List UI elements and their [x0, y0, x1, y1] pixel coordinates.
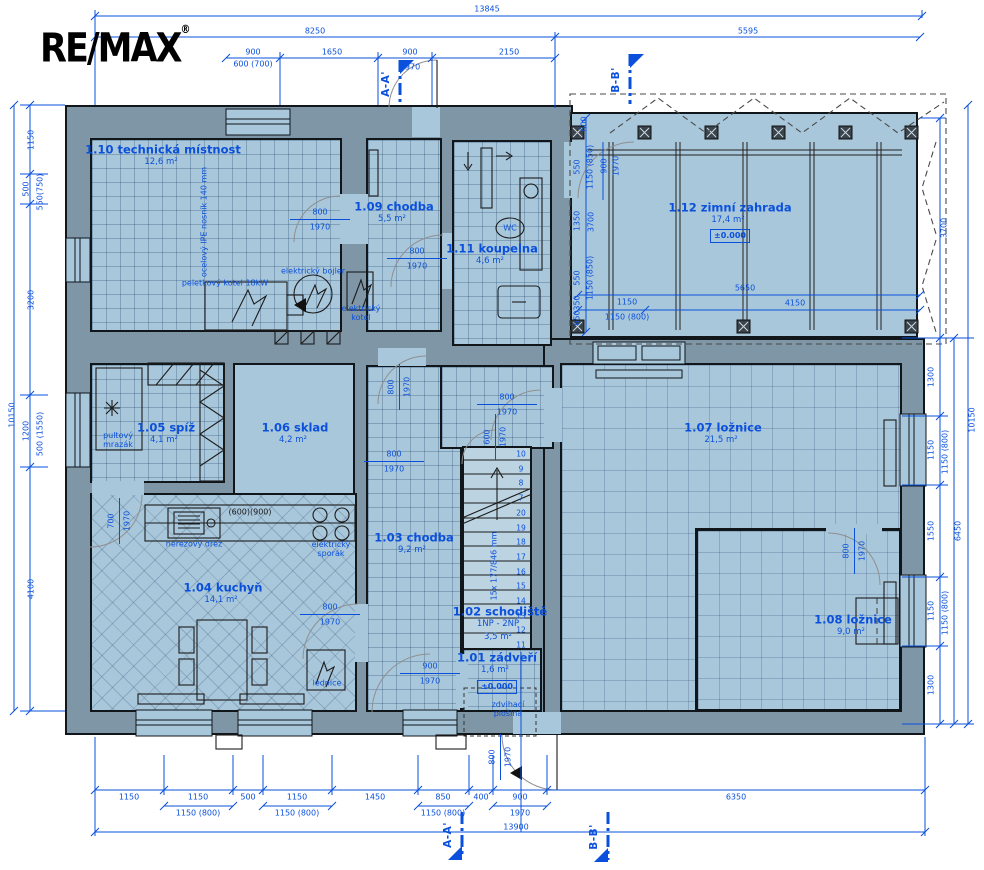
- floor-plan-linework: [0, 0, 984, 870]
- wall-openings: [92, 107, 882, 734]
- section-flags: [400, 54, 644, 862]
- flow-arrow: [294, 298, 306, 312]
- fixtures: [96, 60, 898, 790]
- windows: [66, 109, 926, 736]
- section-lines: [400, 54, 630, 860]
- floor-plan: RE/MAX® A-A' B-B' A-A' B-B' 15x 177/846 …: [0, 0, 984, 870]
- roof-outline-dashed: [570, 94, 946, 644]
- winter-garden-posts: [571, 126, 918, 333]
- winter-garden-mullions: [588, 142, 902, 330]
- entry-arrow: [510, 766, 522, 780]
- door-swing-arcs: [90, 60, 880, 790]
